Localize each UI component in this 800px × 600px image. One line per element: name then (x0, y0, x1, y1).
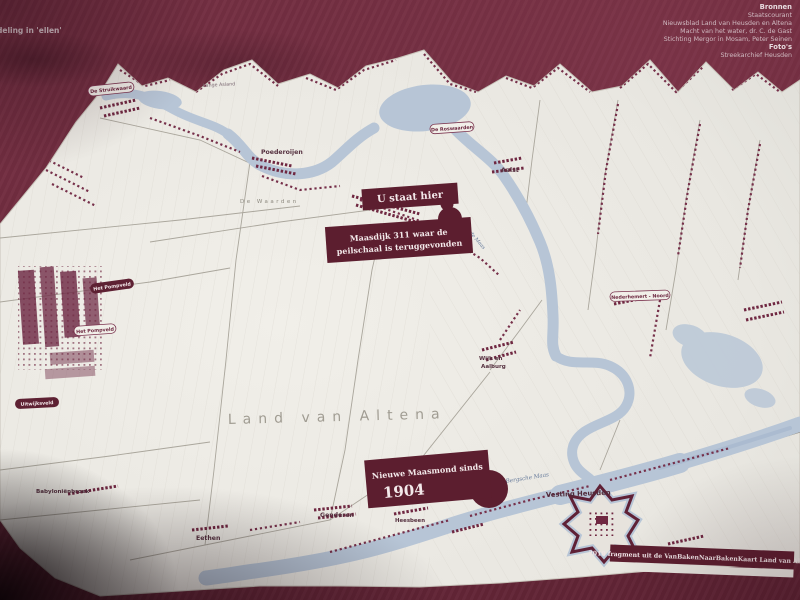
credits-heading-sources: Bronnen (760, 3, 792, 11)
credits-block: Bronnen Staatscourant Nieuwsblad Land va… (663, 3, 793, 59)
credits-source-line: Macht van het water, dr. C. de Gast (680, 28, 792, 35)
area-label-de-waarden: De Waarden (240, 199, 299, 205)
woods-texture (18, 266, 102, 370)
credits-source-line: Stichting Mergor in Mosam, Peter Seinen (664, 36, 792, 43)
credits-source-line: Nieuwsblad Land van Heusden en Altena (663, 20, 792, 27)
board-corner-text: deling in 'ellen' (0, 26, 62, 35)
town-wijk-en: Wijk en (479, 356, 502, 362)
map-photo: Land van Altena De Waarden Lange Asland … (0, 0, 800, 600)
town-eethen: Eethen (196, 535, 220, 542)
town-babylonienbroek: Babyloniënbroek (36, 489, 90, 495)
town-aalburg: Aalburg (481, 364, 506, 370)
credits-heading-photos: Foto's (769, 43, 792, 51)
town-heesbeen: Heesbeen (395, 518, 425, 524)
town-aalst: Aalst (501, 167, 519, 174)
town-poederoijen: Poederoijen (261, 149, 303, 156)
credits-source-line: Staatscourant (748, 12, 793, 19)
credits-photo-line: Streekarchief Heusden (720, 52, 792, 59)
maasmond-text-line2: 1904 (382, 480, 425, 502)
town-genderen: Genderen (320, 512, 354, 519)
photo-of-map-board: { "photo": { "board_corner_text": "delin… (0, 0, 800, 600)
